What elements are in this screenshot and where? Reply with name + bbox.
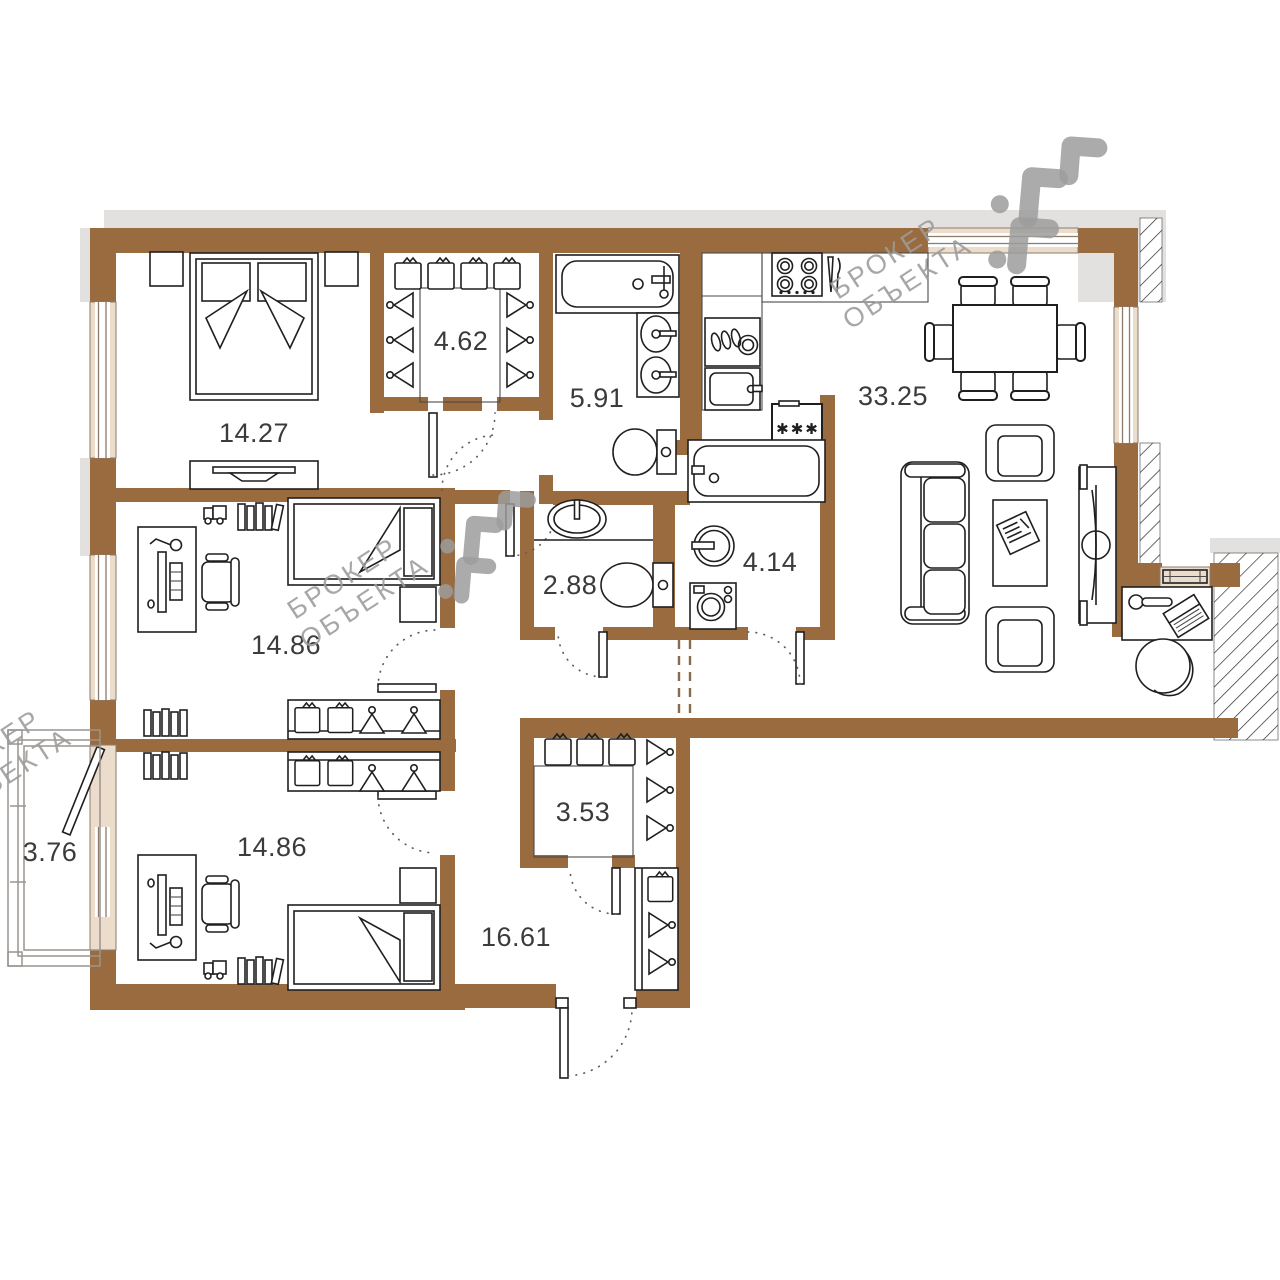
wc-door — [558, 632, 607, 677]
children-2-area-label: 14.86 — [237, 832, 307, 862]
children-room-2-door — [378, 791, 436, 853]
armchair-icon — [986, 425, 1054, 481]
closet-area-label: 3.53 — [556, 797, 611, 827]
sofa-icon — [901, 462, 969, 624]
desk-chair-icon — [202, 554, 239, 610]
books-icon — [238, 503, 283, 530]
floor-plan-canvas: ✱✱✱ — [0, 0, 1280, 1280]
kitchen-living-area-label: 33.25 — [858, 381, 928, 411]
hanger-icon — [647, 740, 673, 764]
freezer-symbol: ✱✱✱ — [776, 421, 820, 438]
books-icon — [238, 957, 283, 984]
nightstand-icon — [400, 868, 436, 903]
books-icon — [144, 709, 187, 736]
hanger-icon — [387, 293, 413, 317]
nightstand-icon — [150, 252, 183, 286]
double-sink-icon — [637, 313, 679, 397]
kitchen-sink-icon — [705, 368, 762, 410]
closet-door — [570, 868, 620, 914]
balcony-area-label: 3.76 — [23, 837, 78, 867]
coffee-table-icon — [993, 500, 1047, 586]
tv-dresser-icon — [190, 461, 318, 489]
brand-text-watermark: БРОКЕР ОБЪЕКТА — [0, 695, 77, 827]
bedroom-area-label: 14.27 — [219, 418, 289, 448]
zone-boundary — [679, 640, 690, 718]
hanger-icon — [507, 328, 533, 352]
wc-area-label: 2.88 — [543, 570, 598, 600]
room-closet — [534, 734, 673, 857]
hanger-icon — [387, 363, 413, 387]
room-bedroom — [150, 252, 358, 489]
children-room-1-window — [90, 555, 116, 700]
washing-machine-icon — [690, 583, 736, 629]
wardrobe-area-label: 4.62 — [434, 326, 489, 356]
toilet-icon — [601, 563, 673, 607]
tv-stand-icon — [1079, 465, 1116, 625]
single-bed-icon — [288, 905, 440, 990]
work-desk-icon — [1122, 587, 1212, 640]
desk-chair-icon — [202, 876, 239, 932]
desk-icon — [138, 855, 196, 960]
bedroom-window — [90, 302, 116, 458]
sink-icon — [548, 500, 606, 538]
hanger-icon — [507, 363, 533, 387]
stove-icon — [772, 253, 822, 296]
hanger-icon — [647, 816, 673, 840]
floor-plan-page: ✱✱✱ — [0, 0, 1280, 1280]
bathtub-icon — [688, 440, 825, 502]
room-bathroom-2 — [688, 440, 825, 629]
hallway-wardrobe — [635, 868, 678, 990]
dining-table-icon — [925, 277, 1085, 400]
room-children-1 — [138, 498, 440, 739]
round-sink-icon — [692, 526, 734, 566]
hanger-icon — [647, 778, 673, 802]
bathroom-2-area-label: 4.14 — [743, 547, 798, 577]
room-bathroom-1 — [556, 255, 679, 475]
wardrobe-icon — [288, 700, 440, 739]
bathroom-2-door — [748, 632, 804, 684]
wardrobe-icon — [288, 752, 440, 791]
living-room-window — [1114, 307, 1138, 443]
desk-icon — [138, 527, 196, 632]
books-icon — [144, 752, 187, 779]
room-children-2 — [138, 752, 440, 990]
dish-rack-icon — [705, 318, 760, 366]
hallway-area-label: 16.61 — [481, 922, 551, 952]
bathtub-icon — [556, 255, 679, 313]
double-bed-icon — [190, 253, 318, 400]
toy-truck-icon — [204, 961, 226, 979]
entrance-door — [556, 998, 636, 1078]
nightstand-icon — [325, 252, 358, 286]
children-room-1-door — [378, 630, 436, 692]
toy-truck-icon — [204, 506, 226, 524]
desk-nook-window — [1160, 567, 1210, 587]
office-chair-icon — [1136, 639, 1193, 696]
hanger-icon — [387, 328, 413, 352]
toilet-icon — [613, 429, 676, 475]
hanger-icon — [507, 293, 533, 317]
armchair-icon — [986, 607, 1054, 672]
bathroom-1-area-label: 5.91 — [570, 383, 625, 413]
